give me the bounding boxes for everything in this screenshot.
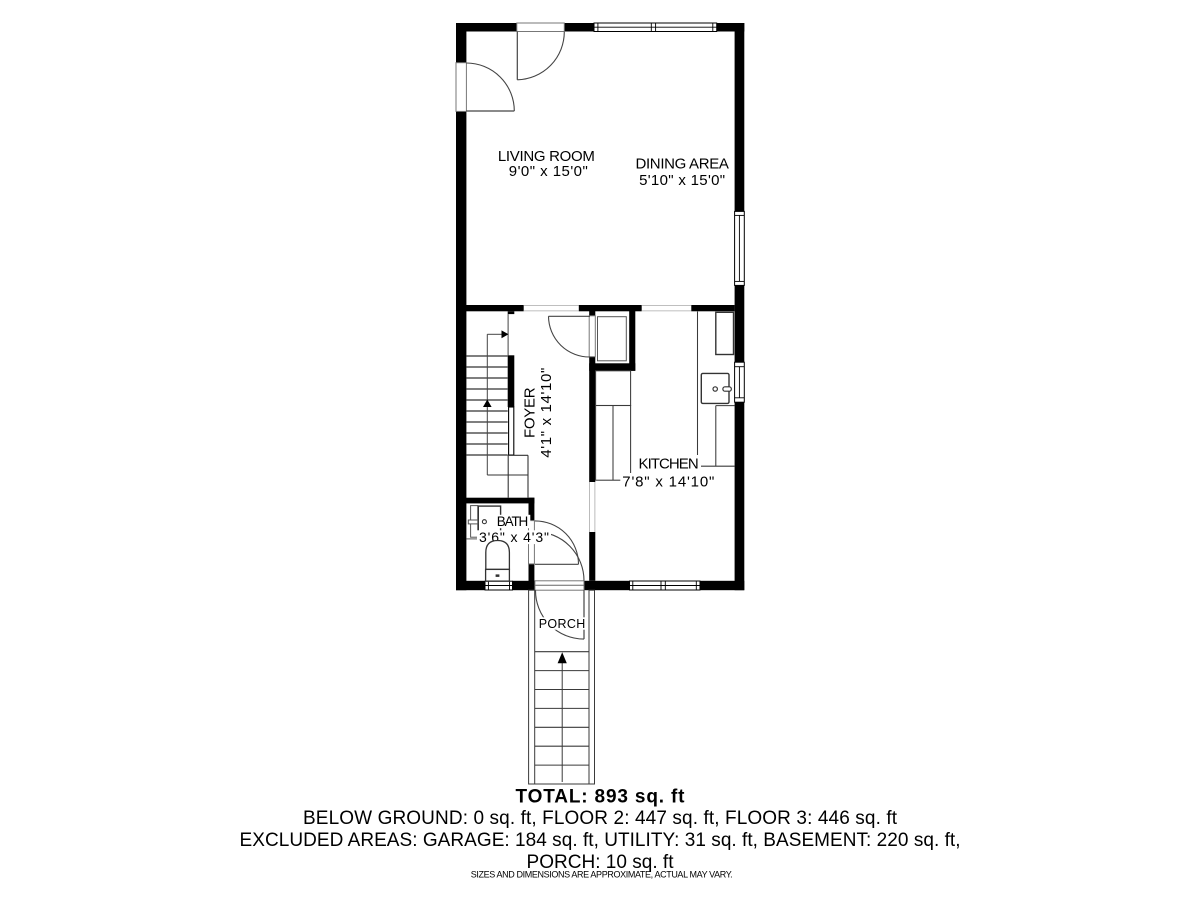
svg-text:DINING AREA: DINING AREA	[635, 156, 729, 173]
svg-text:9'0" x 15'0": 9'0" x 15'0"	[509, 163, 588, 180]
svg-text:TOTAL: 893 sq. ft: TOTAL: 893 sq. ft	[516, 787, 686, 808]
svg-text:4'1" x 14'10": 4'1" x 14'10"	[538, 368, 555, 458]
svg-text:7'8" x 14'10": 7'8" x 14'10"	[622, 473, 714, 490]
svg-text:EXCLUDED AREAS: GARAGE: 184 sq: EXCLUDED AREAS: GARAGE: 184 sq. ft, UTIL…	[240, 830, 961, 851]
svg-text:KITCHEN: KITCHEN	[639, 455, 699, 472]
svg-text:BELOW GROUND: 0 sq. ft, FLOOR: BELOW GROUND: 0 sq. ft, FLOOR 2: 447 sq.…	[303, 808, 898, 829]
svg-text:5'10" x 15'0": 5'10" x 15'0"	[639, 172, 725, 189]
svg-text:FOYER: FOYER	[522, 387, 539, 438]
svg-text:PORCH: PORCH	[539, 617, 586, 631]
svg-text:SIZES AND DIMENSIONS ARE APPRO: SIZES AND DIMENSIONS ARE APPROXIMATE, AC…	[471, 870, 733, 880]
svg-text:BATH: BATH	[497, 514, 529, 529]
